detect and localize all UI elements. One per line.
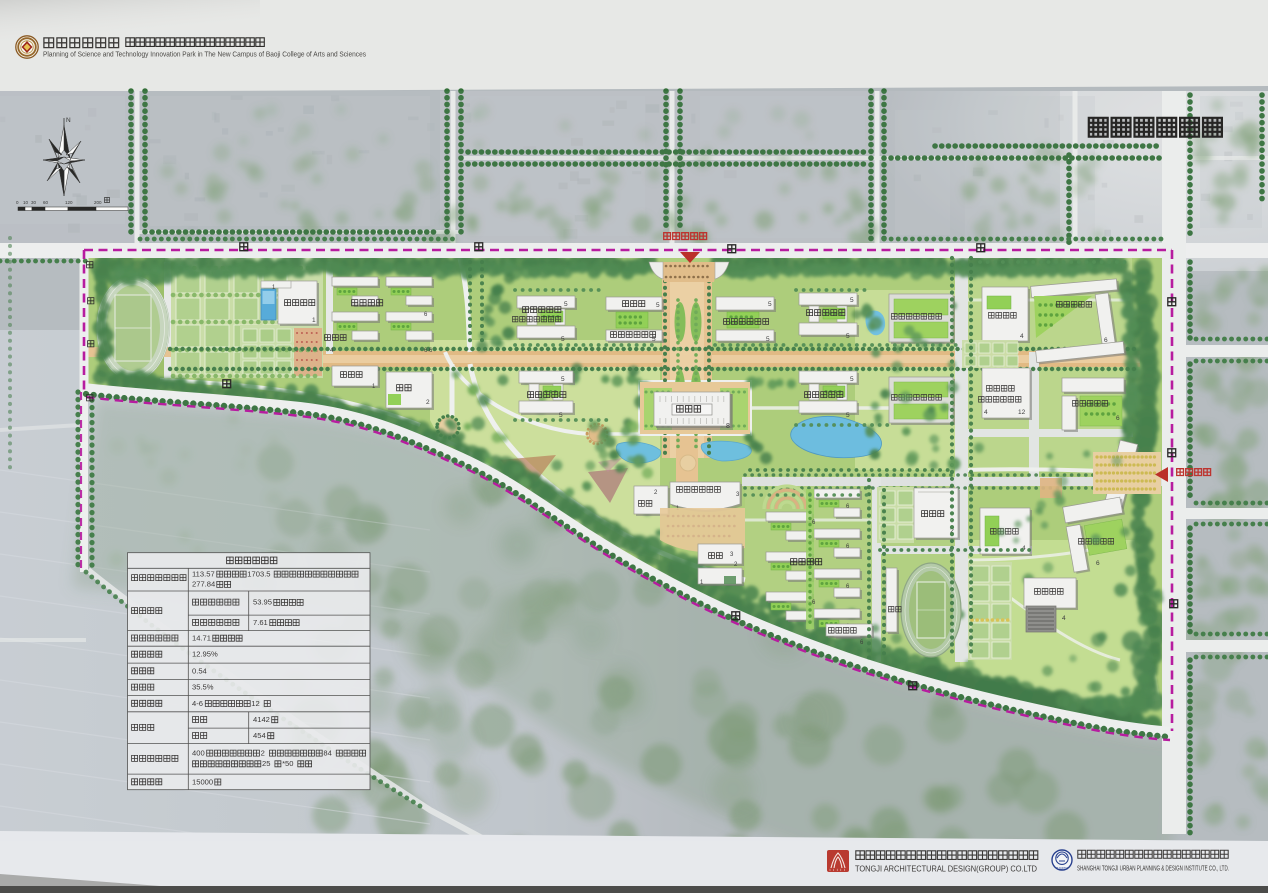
svg-text:SHANGHAI TONGJI URBAN PLANNING: SHANGHAI TONGJI URBAN PLANNING & DESIGN … [1077,864,1229,873]
svg-text:TONGJI ARCHITECTURAL DESIGN(GR: TONGJI ARCHITECTURAL DESIGN(GROUP) CO.LT… [855,864,1037,874]
svg-text:Planning of Science and Techno: Planning of Science and Technology Innov… [43,52,366,59]
svg-text:TJUPDI: TJUPDI [1056,867,1068,871]
